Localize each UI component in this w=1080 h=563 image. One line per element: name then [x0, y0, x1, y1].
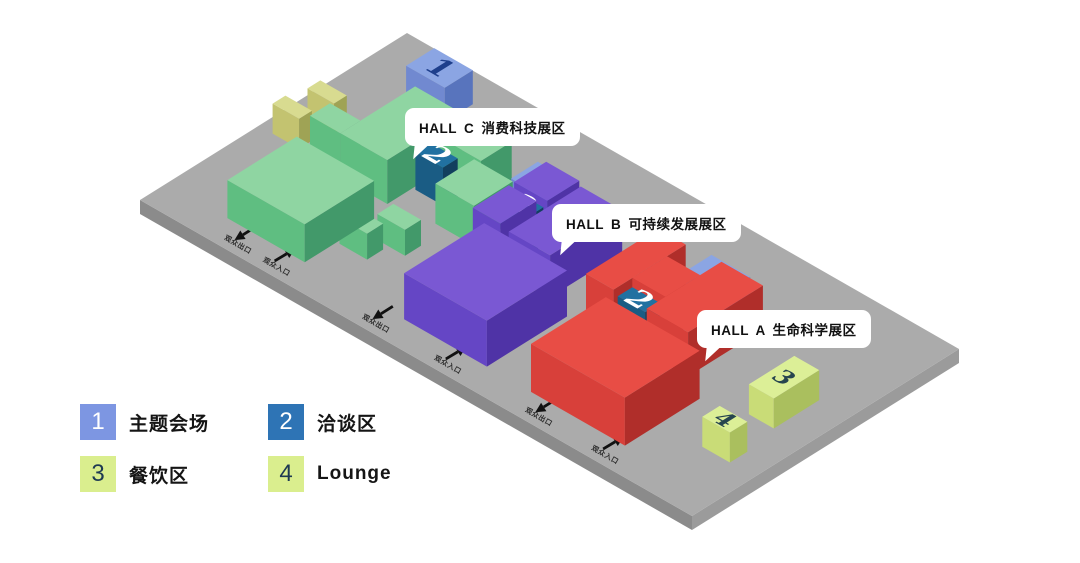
legend-label-lounge: Lounge — [317, 463, 392, 485]
hall-c-label: HALL C 消费科技展区 — [405, 108, 580, 146]
legend-label-meeting: 洽谈区 — [317, 409, 377, 436]
legend: 1 主题会场 2 洽谈区 3 餐饮区 4 Lounge — [80, 404, 392, 492]
venue-map: 观众出口观众入口观众出口观众入口观众出口观众入口12121234 HALL C … — [0, 0, 1080, 563]
legend-item-dining: 3 餐饮区 — [80, 456, 268, 492]
legend-item-stage: 1 主题会场 — [80, 404, 268, 440]
legend-swatch-1: 1 — [80, 404, 116, 440]
legend-item-lounge: 4 Lounge — [268, 456, 392, 492]
hall-a-label-text: HALL A 生命科学展区 — [711, 323, 857, 338]
legend-item-meeting: 2 洽谈区 — [268, 404, 392, 440]
hall-b-label: HALL B 可持续发展展区 — [552, 204, 741, 242]
legend-label-stage: 主题会场 — [129, 409, 209, 436]
hall-a-label: HALL A 生命科学展区 — [697, 310, 871, 348]
hall-c-label-text: HALL C 消费科技展区 — [419, 121, 566, 136]
legend-swatch-3: 3 — [80, 456, 116, 492]
hall-b-label-text: HALL B 可持续发展展区 — [566, 217, 727, 232]
legend-swatch-2: 2 — [268, 404, 304, 440]
legend-label-dining: 餐饮区 — [129, 461, 189, 488]
legend-swatch-4: 4 — [268, 456, 304, 492]
